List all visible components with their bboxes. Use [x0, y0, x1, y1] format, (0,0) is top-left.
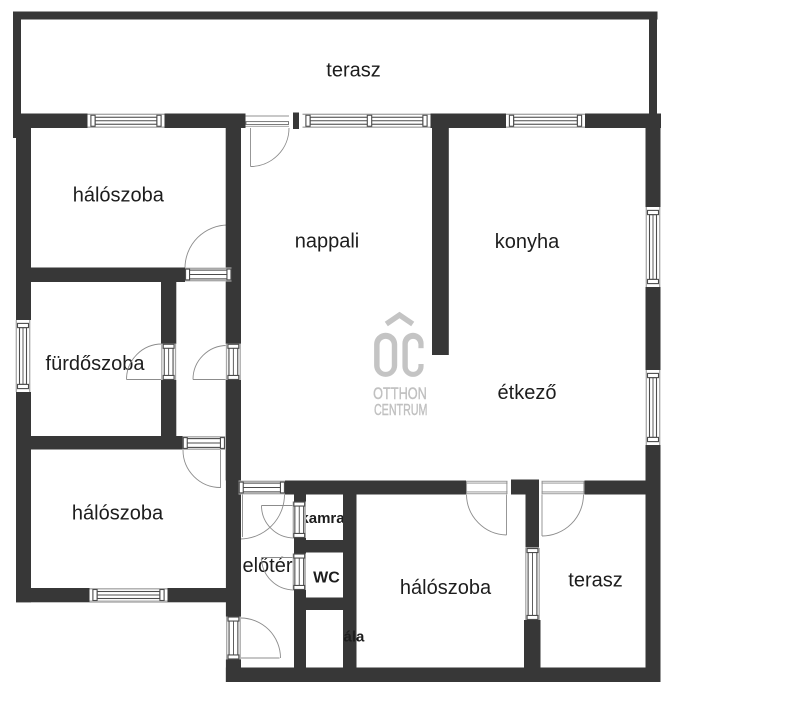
svg-text:terasz: terasz [568, 570, 622, 592]
svg-text:előtér: előtér [242, 555, 292, 577]
svg-text:kamra: kamra [300, 510, 345, 527]
svg-text:nappali: nappali [295, 231, 360, 253]
svg-text:CENTRUM: CENTRUM [374, 401, 427, 418]
svg-text:hálószoba: hálószoba [400, 577, 492, 599]
svg-text:hálószoba: hálószoba [73, 185, 165, 207]
svg-text:konyha: konyha [495, 231, 560, 253]
svg-text:terasz: terasz [326, 60, 380, 82]
svg-text:étkező: étkező [498, 382, 557, 404]
svg-text:hálószoba: hálószoba [72, 503, 164, 525]
svg-text:ála: ála [344, 629, 366, 646]
svg-text:WC: WC [313, 570, 340, 587]
